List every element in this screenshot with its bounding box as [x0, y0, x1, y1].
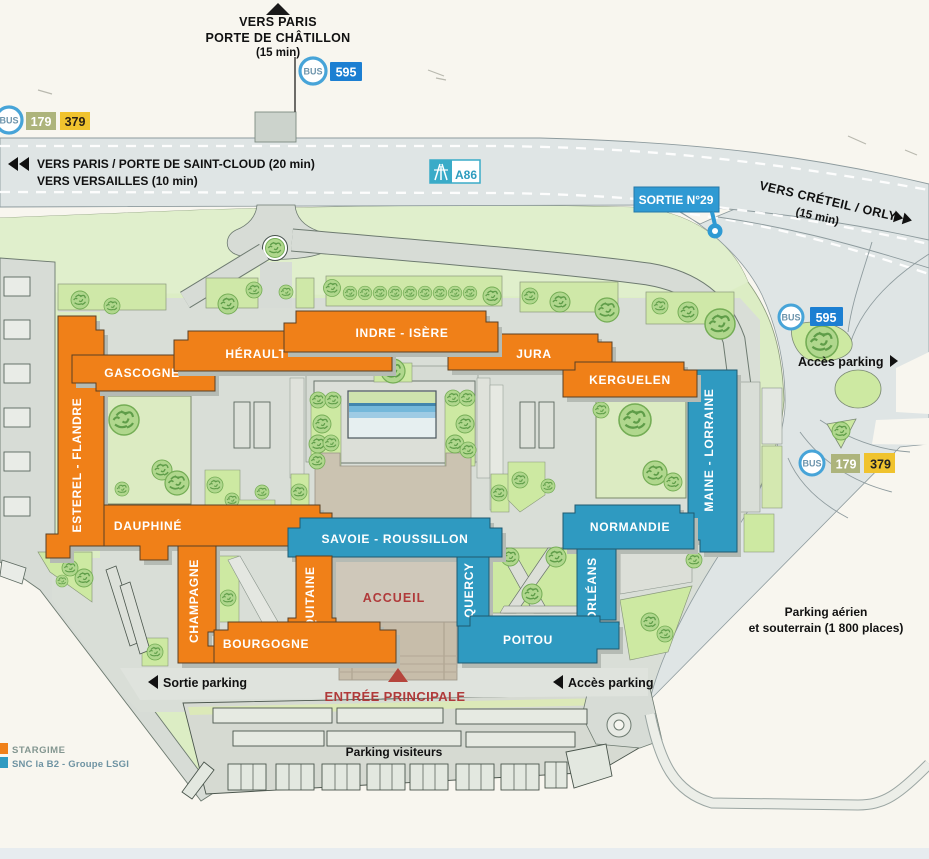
svg-text:MAINE - LORRAINE: MAINE - LORRAINE — [702, 388, 716, 511]
svg-text:KERGUELEN: KERGUELEN — [589, 373, 671, 387]
svg-text:379: 379 — [870, 458, 891, 472]
svg-text:BOURGOGNE: BOURGOGNE — [223, 637, 309, 651]
svg-text:DAUPHINÉ: DAUPHINÉ — [114, 518, 182, 533]
svg-text:VERS PARIS: VERS PARIS — [239, 15, 317, 29]
svg-text:QUERCY: QUERCY — [462, 562, 476, 618]
svg-text:STARGIME: STARGIME — [12, 745, 65, 756]
svg-text:BUS: BUS — [303, 67, 322, 77]
svg-text:POITOU: POITOU — [503, 633, 553, 647]
svg-text:NORMANDIE: NORMANDIE — [590, 520, 670, 534]
svg-text:595: 595 — [816, 311, 837, 325]
svg-text:BUS: BUS — [781, 313, 800, 323]
svg-text:179: 179 — [31, 115, 52, 129]
svg-text:Sortie parking: Sortie parking — [163, 676, 247, 690]
svg-text:VERS PARIS / PORTE DE SAINT-CL: VERS PARIS / PORTE DE SAINT-CLOUD (20 mi… — [37, 157, 315, 171]
svg-text:379: 379 — [65, 115, 86, 129]
svg-text:SAVOIE - ROUSSILLON: SAVOIE - ROUSSILLON — [321, 532, 468, 546]
svg-text:A86: A86 — [455, 168, 477, 182]
svg-text:SORTIE N°29: SORTIE N°29 — [639, 193, 714, 207]
svg-text:Accès parking: Accès parking — [568, 676, 653, 690]
svg-text:ACCUEIL: ACCUEIL — [363, 591, 426, 605]
svg-text:HÉRAULT: HÉRAULT — [225, 346, 286, 361]
svg-text:VERS VERSAILLES (10 min): VERS VERSAILLES (10 min) — [37, 174, 198, 188]
svg-text:JURA: JURA — [516, 347, 551, 361]
svg-text:Accès parking: Accès parking — [798, 355, 883, 369]
svg-text:ENTRÉE PRINCIPALE: ENTRÉE PRINCIPALE — [325, 689, 466, 704]
svg-text:Parking visiteurs: Parking visiteurs — [346, 745, 443, 759]
svg-text:et souterrain (1 800 places): et souterrain (1 800 places) — [749, 621, 904, 635]
svg-text:PORTE DE CHÂTILLON: PORTE DE CHÂTILLON — [206, 30, 351, 45]
svg-text:SNC la B2 - Groupe LSGI: SNC la B2 - Groupe LSGI — [12, 759, 129, 770]
svg-text:ESTEREL - FLANDRE: ESTEREL - FLANDRE — [70, 397, 84, 532]
svg-text:595: 595 — [336, 66, 357, 80]
svg-text:179: 179 — [836, 458, 857, 472]
svg-text:BUS: BUS — [802, 459, 821, 469]
svg-text:Parking aérien: Parking aérien — [785, 605, 868, 619]
svg-text:INDRE - ISÈRE: INDRE - ISÈRE — [355, 325, 448, 340]
svg-text:(15 min): (15 min) — [256, 47, 300, 59]
svg-text:ORLÉANS: ORLÉANS — [584, 557, 599, 621]
svg-text:CHAMPAGNE: CHAMPAGNE — [187, 559, 201, 643]
svg-text:GASCOGNE: GASCOGNE — [104, 366, 180, 380]
svg-text:BUS: BUS — [0, 116, 19, 126]
